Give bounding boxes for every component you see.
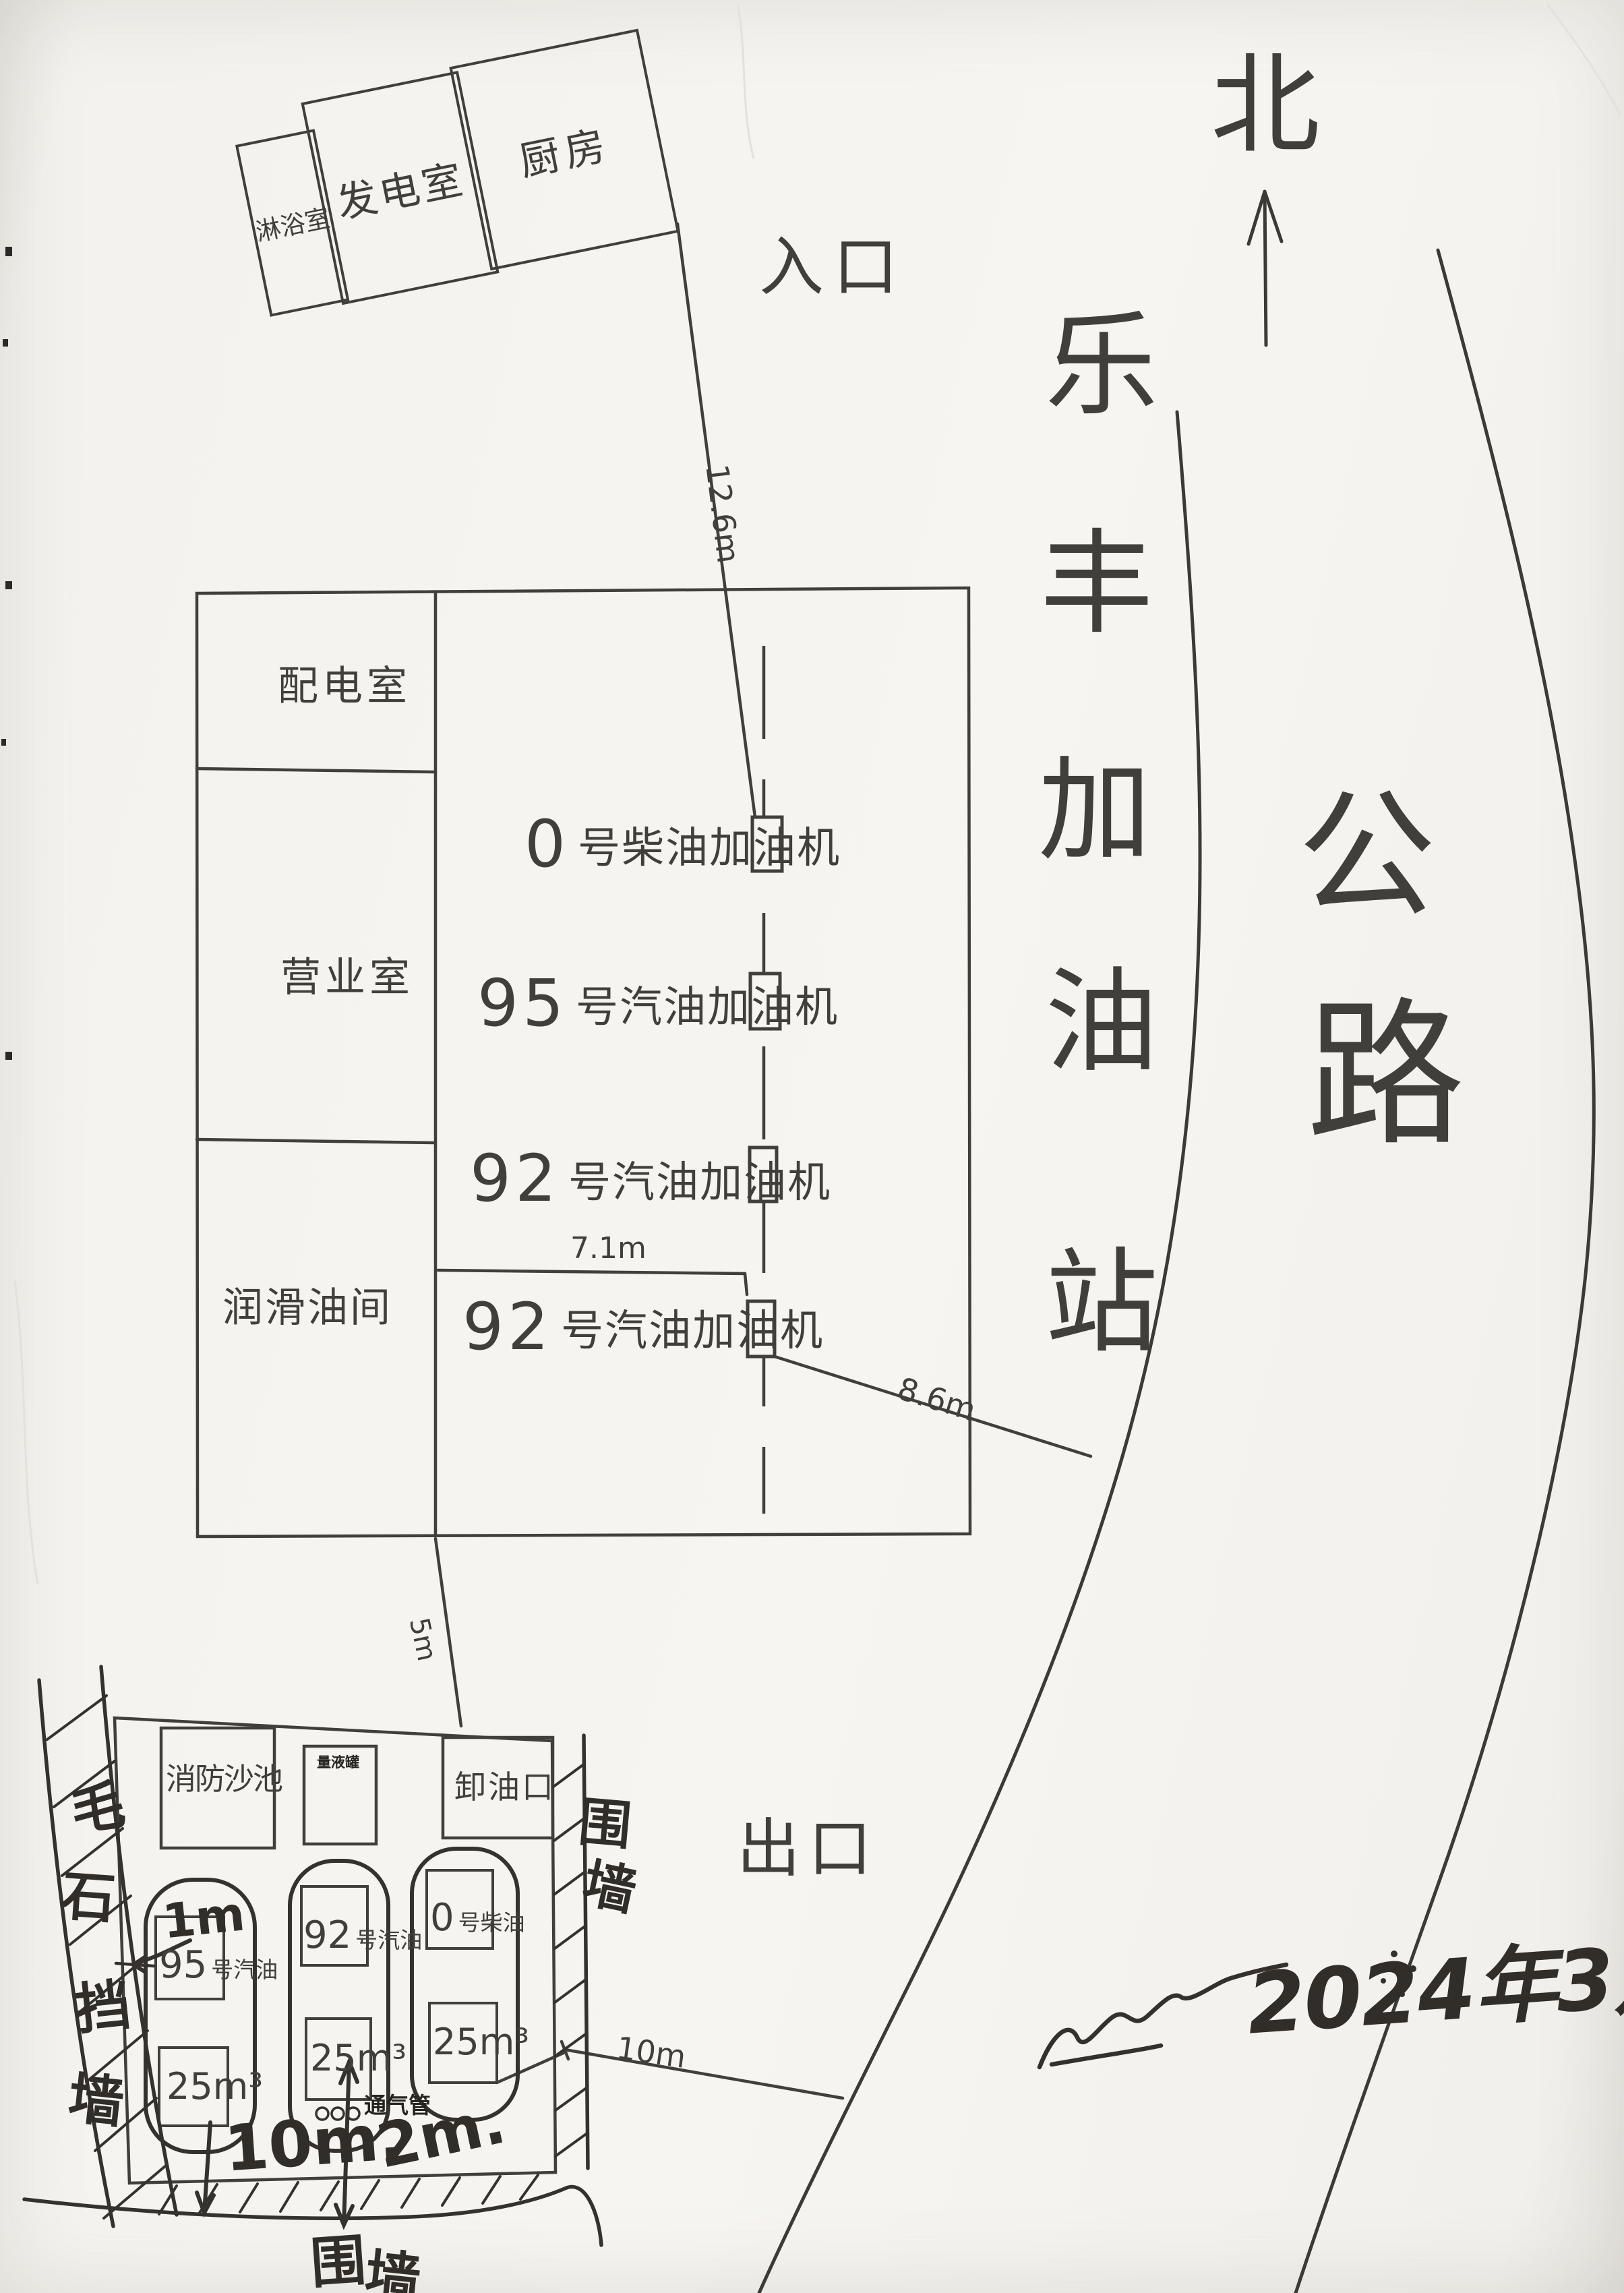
tank-92-label: 92 号汽油: [303, 1913, 422, 1957]
station-name-char-5: 站: [1045, 1246, 1158, 1359]
tank-95-label: 95 号汽油: [159, 1943, 278, 1987]
right-wall-char-1: 围: [576, 1796, 634, 1853]
arrow-10m-hand: [197, 2122, 214, 2213]
dispenser-95-num: 95: [477, 965, 568, 1041]
line-5m: [435, 1539, 461, 1726]
dispenser-92a-label: 号汽油加油机: [568, 1148, 831, 1210]
dispenser-row-0-diesel: 0 号柴油加油机: [524, 806, 841, 882]
tank-0-num: 0: [430, 1896, 454, 1940]
dispenser-0-label: 号柴油加油机: [578, 814, 841, 875]
dispenser-92b-num: 92: [462, 1289, 553, 1365]
entrance-label: 入口: [759, 235, 907, 299]
tank-92-volume: 25m³: [310, 2040, 407, 2077]
tank-0-suffix: 号柴油: [458, 1905, 525, 1937]
room-kitchen: 厨房: [449, 29, 680, 271]
unloading-label: 卸油口: [454, 1772, 555, 1804]
dispenser-row-95: 95 号汽油加油机: [477, 965, 839, 1041]
tank-92-num: 92: [303, 1913, 351, 1957]
dispenser-0-num: 0: [524, 806, 570, 882]
exit-label: 出口: [737, 1818, 880, 1881]
office-divider-2: [197, 1139, 435, 1143]
tank-95-num: 95: [159, 1943, 207, 1987]
room-lube-label: 润滑油间: [222, 1288, 392, 1328]
dispenser-row-92-b: 92 号汽油加油机: [462, 1289, 824, 1365]
dispenser-92b-label: 号汽油加油机: [561, 1297, 824, 1358]
fire-sand-label: 消防沙池: [166, 1764, 282, 1794]
dim-5m: 5m: [405, 1615, 441, 1663]
dim-10m: 10m: [615, 2032, 688, 2073]
room-kitchen-label: 厨房: [514, 112, 615, 187]
dim-7-1m: 7.1m: [570, 1234, 646, 1263]
hand-dim-1m: 1m: [160, 1890, 247, 1945]
retaining-wall-char-2: 石: [59, 1869, 117, 1926]
bottom-wall-char-2: 墙: [362, 2248, 423, 2293]
north-label: 北: [1211, 51, 1320, 160]
office-divider-1: [197, 769, 435, 772]
dispenser-92a-num: 92: [470, 1141, 560, 1216]
tank-95-suffix: 号汽油: [211, 1952, 278, 1984]
station-name-char-3: 加: [1038, 754, 1151, 867]
retaining-wall-hatch: [47, 1696, 166, 2218]
line-7-1m: [438, 1270, 745, 1274]
room-business-label: 营业室: [280, 957, 414, 998]
main-station-outline: [197, 588, 970, 1537]
dispenser-row-92-a: 92 号汽油加油机: [470, 1141, 831, 1216]
room-shower-label: 淋浴室: [252, 198, 333, 248]
highway-char-2: 路: [1306, 996, 1465, 1155]
retaining-wall-char-4: 墙: [65, 2071, 126, 2132]
tank-95-volume: 25m³: [167, 2068, 263, 2105]
highway-char-1: 公: [1298, 787, 1436, 926]
right-wall-char-2: 墙: [578, 1857, 641, 1919]
retaining-wall-char-1: 毛: [67, 1778, 128, 1839]
retaining-wall-char-3: 挡: [73, 1977, 133, 2038]
dispenser-column: [748, 646, 782, 1514]
small-fixture-label: 量液罐: [317, 1756, 359, 1770]
bottom-wall-char-1: 围: [309, 2233, 368, 2292]
station-name-char-2: 丰: [1040, 527, 1153, 641]
room-power-label: 配电室: [278, 666, 411, 707]
tank-0-label: 0 号柴油: [430, 1896, 525, 1940]
tank-92-suffix: 号汽油: [355, 1922, 422, 1955]
scanned-site-plan: 淋浴室 发电室 厨房 配电室 营业室 润滑油间 0 号柴油加油机 95 号汽油加…: [0, 0, 1624, 2293]
dispenser-95-label: 号汽油加油机: [576, 973, 839, 1034]
station-name-char-4: 油: [1045, 965, 1158, 1079]
room-generator-label: 发电室: [331, 146, 469, 230]
edge-marks: [1, 247, 12, 1060]
tank-0-volume: 25m³: [433, 2024, 529, 2060]
canopy-rect: [197, 588, 970, 1537]
line-10m: [565, 2050, 843, 2098]
station-name-char-1: 乐: [1045, 309, 1158, 422]
north-arrow: [1249, 191, 1282, 345]
